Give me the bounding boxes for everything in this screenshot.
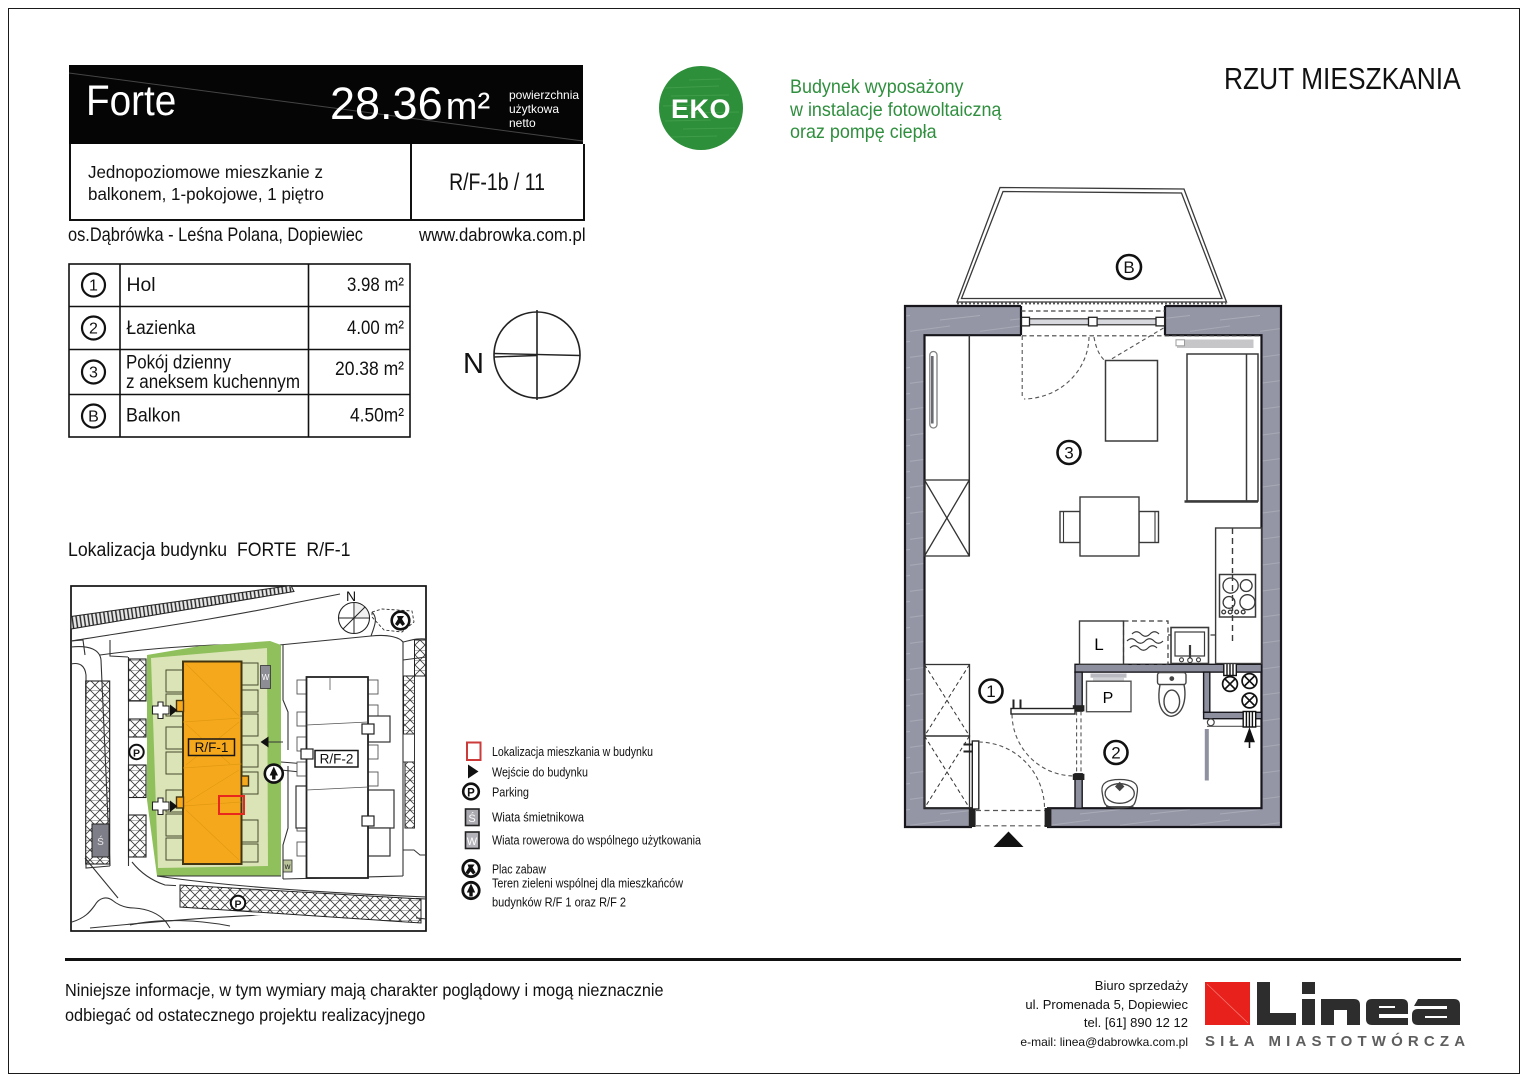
- svg-text:Wiata śmietnikowa: Wiata śmietnikowa: [492, 810, 585, 825]
- svg-text:Łazienka: Łazienka: [127, 318, 196, 339]
- svg-text:EKO: EKO: [671, 94, 731, 124]
- svg-text:P: P: [133, 748, 140, 760]
- svg-text:Wejście do budynku: Wejście do budynku: [492, 765, 588, 780]
- svg-text:P: P: [234, 899, 241, 911]
- svg-text:budynków R/F 1 oraz R/F 2: budynków R/F 1 oraz R/F 2: [492, 895, 626, 910]
- svg-text:R/F-2: R/F-2: [320, 752, 354, 767]
- svg-text:Ś: Ś: [468, 812, 475, 825]
- svg-text:N: N: [463, 348, 484, 380]
- svg-text:2: 2: [89, 321, 98, 338]
- svg-text:Hol: Hol: [127, 275, 156, 296]
- svg-text:3.98 m²: 3.98 m²: [347, 275, 404, 296]
- svg-text:Parking: Parking: [492, 785, 529, 800]
- svg-text:L: L: [1094, 635, 1103, 654]
- svg-text:W: W: [467, 836, 478, 848]
- svg-text:B: B: [1123, 258, 1134, 277]
- svg-text:R/F-1: R/F-1: [195, 740, 229, 755]
- svg-text:P: P: [1103, 690, 1114, 707]
- svg-text:1: 1: [89, 278, 98, 295]
- svg-text:W: W: [262, 673, 270, 682]
- svg-text:Lokalizacja mieszkania w budyn: Lokalizacja mieszkania w budynku: [492, 744, 653, 759]
- svg-text:w: w: [284, 862, 291, 871]
- svg-text:Plac zabaw: Plac zabaw: [492, 862, 546, 877]
- svg-text:P: P: [467, 788, 475, 800]
- svg-text:Pokój dzienny: Pokój dzienny: [126, 353, 231, 374]
- svg-text:Wiata rowerowa do wspólnego uż: Wiata rowerowa do wspólnego użytkowania: [492, 833, 702, 848]
- svg-text:4.50m²: 4.50m²: [350, 406, 404, 427]
- svg-text:Balkon: Balkon: [126, 406, 181, 427]
- svg-text:3: 3: [1064, 444, 1073, 463]
- svg-text:z aneksem kuchennym: z aneksem kuchennym: [126, 372, 300, 393]
- svg-text:1: 1: [986, 682, 995, 701]
- svg-text:4.00 m²: 4.00 m²: [347, 318, 404, 339]
- svg-text:SIŁA MIASTOTWÓRCZA: SIŁA MIASTOTWÓRCZA: [1205, 1032, 1470, 1050]
- svg-text:Teren zieleni wspólnej dla mie: Teren zieleni wspólnej dla mieszkańców: [492, 876, 683, 891]
- svg-text:2: 2: [1111, 744, 1120, 763]
- svg-text:B: B: [88, 409, 99, 426]
- svg-text:N: N: [346, 588, 356, 604]
- svg-text:Ś: Ś: [97, 835, 104, 848]
- svg-text:3: 3: [89, 365, 98, 382]
- svg-text:20.38 m²: 20.38 m²: [335, 359, 404, 380]
